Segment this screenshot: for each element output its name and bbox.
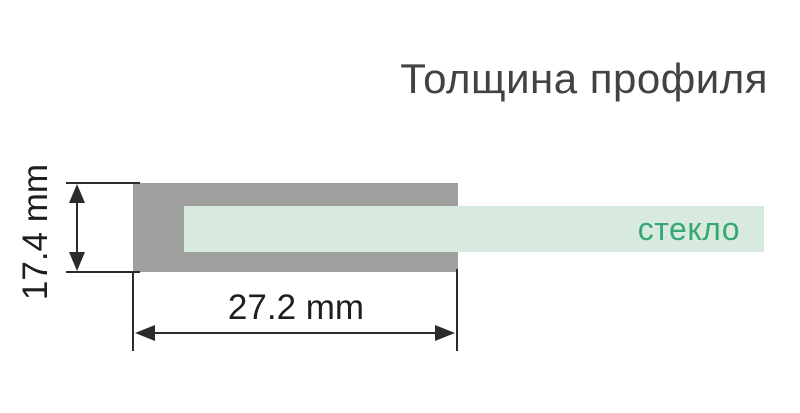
arrowhead-up-icon [69,184,85,203]
width-dim-line [150,332,440,334]
glass-panel: стекло [184,206,764,252]
profile-thickness-diagram: Толщина профиля стекло 17.4 mm 27.2 mm [0,0,800,413]
glass-label: стекло [638,206,764,252]
height-dim-label: 17.4 mm [14,147,58,317]
width-dim-label: 27.2 mm [137,289,455,327]
height-dim-tick-bottom [66,271,140,273]
width-dim-extension-left [132,273,134,351]
arrowhead-down-icon [69,252,85,271]
arrowhead-left-icon [135,325,155,341]
page-title: Толщина профиля [400,56,768,102]
width-dim-extension-right [456,269,458,351]
arrowhead-right-icon [435,325,455,341]
